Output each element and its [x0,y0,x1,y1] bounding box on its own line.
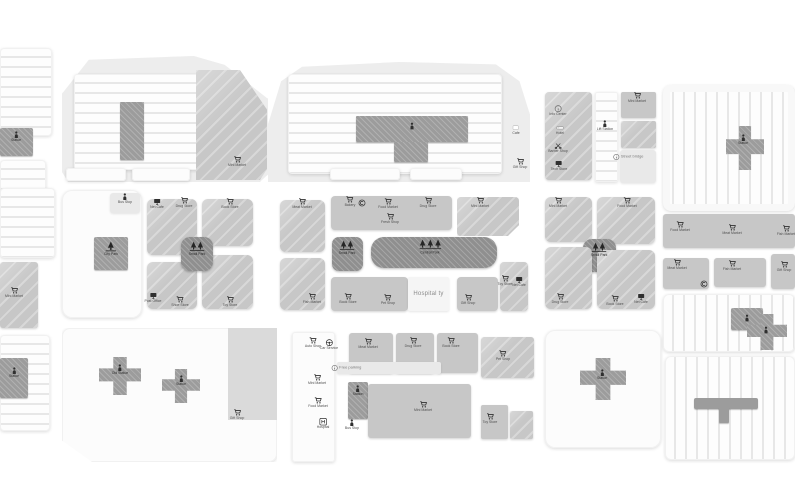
poi-cart-book-store[interactable]: Book Store [436,337,466,352]
cart-icon [447,337,455,345]
person-icon [116,364,124,372]
map-block-w-edge-rows [0,188,55,258]
monitor-icon [153,198,161,206]
poi-cart-pet-shop[interactable]: Pet Shop [491,350,516,365]
poi-cart-gift-shop[interactable]: Gift Shop [224,409,249,424]
cart-icon [314,397,322,405]
cart-icon [364,338,372,346]
circle-i-icon [613,154,620,161]
cart-icon [728,260,736,268]
cart-icon [673,259,681,267]
poi-label: Bus Stop [118,201,132,205]
poi-cart-food-market[interactable]: Food Market [610,197,644,212]
poi-label: Food Market [670,229,690,233]
monitor-icon [515,276,523,284]
cart-icon [728,224,736,232]
poi-circle-c[interactable] [700,280,708,288]
poi-tree2-small-park[interactable]: Small Park [584,242,613,261]
map-block-block-n-tab2 [410,168,462,180]
poi-person[interactable] [762,326,770,334]
person-icon [177,375,185,383]
cart-icon [676,221,684,229]
cart-icon [409,337,417,345]
poi-cart-toy-store[interactable]: Toy Store [217,296,242,311]
poi-cart-meat-market[interactable]: Meat Market [351,338,384,353]
cart-icon [623,197,631,205]
poi-label: Gift Shop [461,302,476,306]
poi-label: Meat Market [292,206,311,210]
poi-label: Small Park [591,254,608,258]
person-icon [10,367,18,375]
cart-icon [384,198,392,206]
poi-bed-hotel[interactable]: Hotel [553,124,567,139]
poi-monitor-post-office[interactable]: Post Office [138,292,167,307]
poi-person-statue[interactable]: Statue [5,367,22,382]
poi-circle-c[interactable] [358,199,366,207]
monitor-icon [555,160,563,168]
cart-icon [633,92,641,100]
cart-icon [180,197,188,205]
poi-label: Meat Market [358,346,377,350]
poi-person-station[interactable]: Station [349,385,368,400]
poi-cart-meat-market[interactable]: Meat Market [715,224,748,239]
poi-cart-mini-market[interactable]: Mini Market [0,287,30,302]
poi-label: Info Center [549,113,566,117]
gear-icon [325,339,333,347]
poi-person-old-statue[interactable]: Old Statue [106,364,134,379]
poi-label: Mini Market [628,100,646,104]
poi-label: Drug Store [420,205,437,209]
poi-cart-bakery[interactable]: Bakery [341,196,360,211]
cart-icon [554,197,562,205]
poi-cart-food-market[interactable]: Food Market [663,221,697,236]
poi-label: Small Park [339,252,356,256]
poi-label: Toy Store [483,421,498,425]
poi-label: Barber Shop [548,150,568,154]
poi-label: Central Park [420,251,439,255]
poi-label: Pet Shop [496,358,510,362]
tree2-icon [590,242,607,254]
map-block-bm-small2 [510,411,533,439]
circle-i-icon [331,365,338,372]
poi-label: Drug Store [405,345,422,349]
poi-person-lift-station[interactable]: Lift Station [591,120,619,135]
poi-cart-book-store[interactable]: Book Store [215,198,245,213]
poi-label: Post Office [145,300,162,304]
poi-label: Statue [176,383,186,387]
poi-label: Statue [597,377,607,381]
cart-icon [308,293,316,301]
dot-icon [512,124,520,132]
poi-label: Bus Stop [345,427,359,431]
poi-label: Gift Shop [777,269,792,273]
poi-label: Free parking [339,366,361,370]
cart-icon [516,158,524,166]
map-block-block-ne1-r2 [621,121,656,148]
poi-label: Pet Shop [381,302,395,306]
poi-person-statue[interactable]: Statue [172,375,189,390]
cart-icon [313,374,321,382]
monitor-icon [637,293,645,301]
poi-cart-food-market[interactable]: Food Market [301,397,335,412]
poi-label: Old Statue [112,372,128,376]
poi-cart-fresh-shop[interactable]: Fresh Shop [374,213,405,228]
poi-label: Book Store [339,301,356,305]
poi-cart-mini-market[interactable]: Mini Market [464,197,495,212]
cart-icon [176,296,184,304]
hsq-icon [319,418,327,426]
circle-i-icon [554,105,562,113]
cart-icon [424,197,432,205]
cart-icon [486,413,494,421]
poi-cart-gift-shop[interactable]: Gift Shop [771,261,795,276]
poi-cart-mini-market[interactable]: Mini Market [221,156,252,171]
poi-label: Meat Market [722,232,741,236]
tree3-icon [418,238,442,251]
poi-label: Food Market [308,405,328,409]
cart-icon [233,156,241,164]
block-label-hospital: Hospital ty [408,277,449,311]
poi-cart-fish-market[interactable]: Fish Market [716,260,747,275]
person-icon [762,326,770,334]
poi-label: Hospital [317,426,330,430]
poi-person-statue[interactable]: Statue [593,369,610,384]
map-block-block-ne1-mid [595,92,618,182]
poi-label: Book Store [442,345,459,349]
poi-label: Net Cafe [634,301,648,305]
poi-cart-mini-market[interactable]: Mini Market [542,197,573,212]
poi-cart-mini-market[interactable]: Mini Market [621,92,652,107]
person-icon [743,314,751,322]
poi-tree2-small-park[interactable]: Small Park [182,241,211,260]
poi-label: Statue [9,375,19,379]
cart-icon [10,287,18,295]
poi-cart-fish-market[interactable]: Fish Market [296,293,327,308]
poi-label: Drug Store [552,301,569,305]
poi-label: Fish Market [723,268,741,272]
cut-icon [554,142,562,150]
circle-c-icon [700,280,708,288]
poi-cart-drug-store[interactable]: Drug Store [398,337,427,352]
poi-tree2-small-park[interactable]: Small Park [332,240,361,259]
poi-label: Drug Store [176,205,193,209]
cart-icon [611,295,619,303]
poi-tree1-city-park[interactable]: City Park [99,241,123,260]
cart-icon [419,401,427,409]
cart-icon [782,225,790,233]
tree1-icon [105,241,117,253]
map-block-block-nw-strip [120,102,144,160]
poi-label: Street bridge [621,155,644,159]
poi-circle-i-free-parking[interactable]: Free parking [331,365,373,372]
poi-person-bus-stop[interactable]: Bus Stop [340,419,364,434]
map-block-nw-edge-rows-top [0,48,52,136]
poi-circle-i-street-bridge[interactable]: Street bridge [613,154,655,161]
cart-icon [346,196,354,204]
poi-cart-mini-market[interactable]: Mini Market [407,401,438,416]
poi-cart-gift-shop[interactable]: Gift Shop [455,294,480,309]
poi-gear-car-service[interactable]: Car Service [313,339,344,354]
poi-person[interactable] [743,314,751,322]
poi-label: Mini Market [308,382,326,386]
cart-icon [226,198,234,206]
person-icon [12,131,20,139]
poi-label: Gift Shop [230,417,245,421]
poi-cut-barber-shop[interactable]: Barber Shop [541,142,575,157]
poi-label: Mini Market [5,295,23,299]
poi-person-statue[interactable]: Statue [7,131,24,146]
poi-label: Net Cafe [150,206,164,210]
poi-label: Tech Store [551,168,568,172]
cart-icon [780,261,788,269]
poi-tree3-central-park[interactable]: Central Park [413,238,446,258]
poi-person-statue[interactable]: Statue [734,134,751,149]
person-icon [598,369,606,377]
cart-icon [499,350,507,358]
map-block-block-nw-tab2 [132,168,190,181]
poi-label: Statue [738,142,748,146]
poi-label: Mini Market [414,409,432,413]
person-icon [601,120,609,128]
poi-label: Fish Market [777,233,795,237]
poi-label: Food Market [378,206,398,210]
cart-icon [344,293,352,301]
poi-cart-meat-market[interactable]: Meat Market [660,259,693,274]
poi-monitor-net-cafe[interactable]: Net Cafe [507,276,531,291]
poi-label: Book Store [221,206,238,210]
cart-icon [476,197,484,205]
map-block-block-sw-gray [228,328,277,420]
map-canvas: Hospital tyStatueMini MarketCafeGift Sho… [0,0,795,500]
poi-label: Hotel [556,132,564,136]
tree2-icon [188,241,205,253]
map-block-block-nw-tab1 [66,168,126,181]
person-icon [354,385,362,393]
poi-label: Station [353,393,364,397]
map-block-block-n-tstem [394,142,428,162]
poi-monitor-tech-store[interactable]: Tech Store [545,160,574,175]
person-icon [121,193,129,201]
cart-icon [384,294,392,302]
poi-cart-book-store[interactable]: Book Store [333,293,363,308]
monitor-icon [149,292,157,300]
poi-label: Meat Market [667,267,686,271]
poi-label: Book Store [606,303,623,307]
poi-label: Lift Station [597,128,613,132]
poi-label: Small Park [189,253,206,257]
cart-icon [226,296,234,304]
poi-cart-toy-store[interactable]: Toy Store [477,413,502,428]
bed-icon [556,124,564,132]
map-block-fe-rows3 [663,294,795,352]
poi-label: Gift Shop [513,166,528,170]
tree2-icon [338,240,355,252]
poi-cart-food-market[interactable]: Food Market [371,198,405,213]
poi-cart-pet-shop[interactable]: Pet Shop [376,294,401,309]
poi-cart-meat-market[interactable]: Meat Market [285,198,318,213]
poi-label: Statue [11,139,21,143]
poi-cart-book-store[interactable]: Book Store [600,295,630,310]
poi-label: Mini Market [471,205,489,209]
poi-cart-fish-market[interactable]: Fish Market [770,225,795,240]
poi-cart-mini-market[interactable]: Mini Market [301,374,332,389]
poi-label: Toy Store [223,304,238,308]
poi-label: Fish Market [303,301,321,305]
cart-icon [298,198,306,206]
poi-label: Fresh Shop [381,221,399,225]
circle-c-icon [358,199,366,207]
person-icon [408,122,416,130]
person-icon [348,419,356,427]
poi-cart-shoe-store[interactable]: Shoe Store [165,296,195,311]
poi-label: Mini Market [549,205,567,209]
poi-label: Cafe [512,132,519,136]
poi-person-bus-stop[interactable]: Bus Stop [113,193,137,208]
poi-monitor-net-cafe[interactable]: Net Cafe [629,293,653,308]
poi-label: City Park [104,253,118,257]
poi-cart-drug-store[interactable]: Drug Store [169,197,198,212]
cart-icon [233,409,241,417]
map-block-fe-bot-pipe2 [719,407,729,423]
poi-hsq-hospital[interactable]: Hospital [312,418,334,433]
poi-cart-drug-store[interactable]: Drug Store [413,197,442,212]
map-block-cm-hospital: Hospital ty [408,277,449,311]
poi-label: Shoe Store [171,304,188,308]
person-icon [739,134,747,142]
poi-label: Bakery [345,204,356,208]
poi-dot-cafe[interactable]: Cafe [510,124,523,139]
poi-cart-drug-store[interactable]: Drug Store [545,293,574,308]
cart-icon [386,213,394,221]
poi-circle-i-info-center[interactable]: Info Center [543,105,573,120]
poi-person[interactable] [408,122,416,130]
poi-monitor-net-cafe[interactable]: Net Cafe [145,198,169,213]
cart-icon [556,293,564,301]
poi-label: Car Service [320,347,338,351]
cart-icon [464,294,472,302]
poi-label: Net Cafe [512,284,526,288]
poi-cart-gift-shop[interactable]: Gift Shop [507,158,532,173]
map-block-block-n-tab1 [330,168,400,180]
poi-label: Food Market [617,205,637,209]
poi-label: Mini Market [228,164,246,168]
